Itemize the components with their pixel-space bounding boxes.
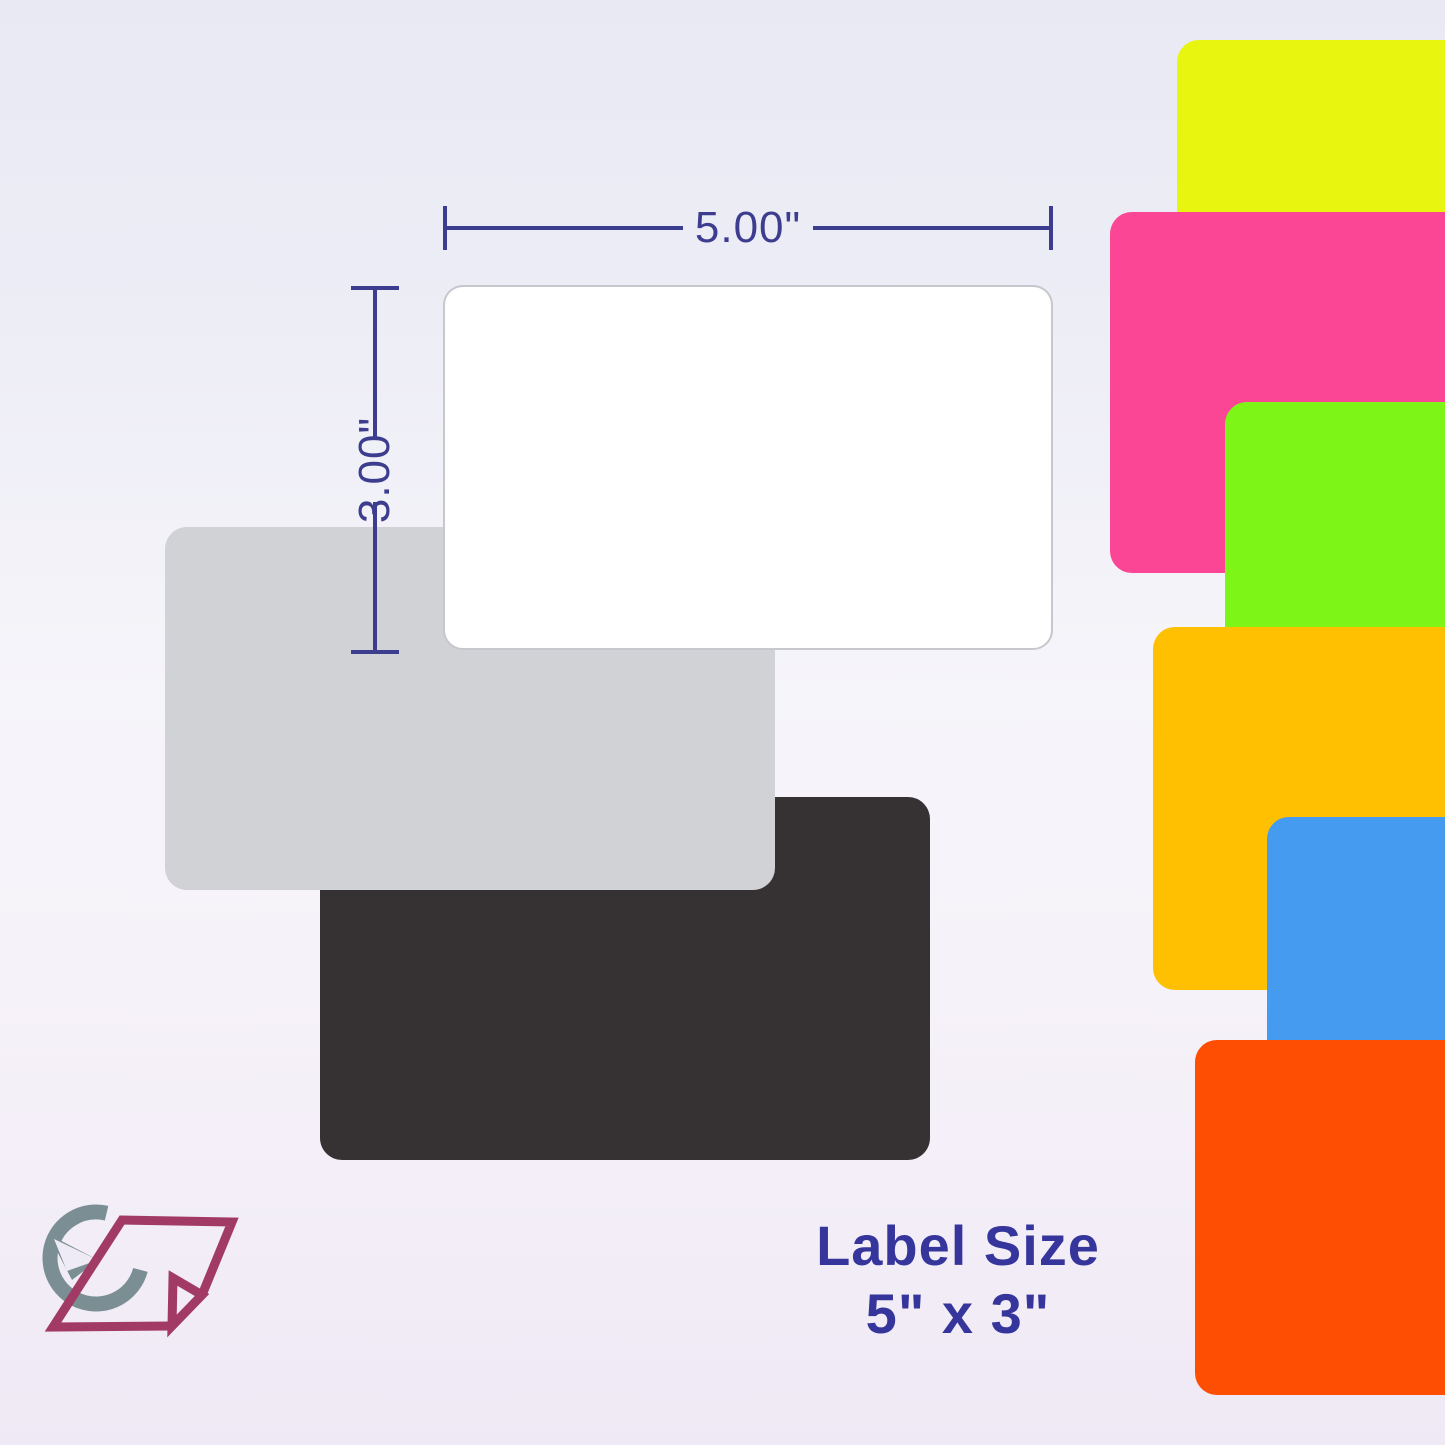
width-dimension-line <box>813 226 1049 230</box>
swatch-label-orange <box>1195 1040 1445 1395</box>
clock-label-logo <box>38 1178 278 1378</box>
label-sheet-fold-icon <box>172 1278 202 1326</box>
height-dimension-value: 3.00" <box>353 417 397 523</box>
caption: Label Size 5" x 3" <box>708 1212 1208 1349</box>
width-dimension-line <box>447 226 683 230</box>
width-dimension-value: 5.00" <box>695 206 801 250</box>
width-dimension-right-tick <box>1049 206 1053 250</box>
height-dimension-line <box>373 502 377 650</box>
caption-line2: 5" x 3" <box>708 1280 1208 1348</box>
height-dimension-bottom-tick <box>351 650 399 654</box>
product-image: 5.00" 3.00" Label Size 5" x 3" <box>0 0 1445 1445</box>
caption-line1: Label Size <box>708 1212 1208 1280</box>
width-dimension: 5.00" <box>443 206 1053 250</box>
label-white <box>443 285 1053 650</box>
height-dimension-line <box>373 290 377 438</box>
height-dimension: 3.00" <box>351 286 399 654</box>
